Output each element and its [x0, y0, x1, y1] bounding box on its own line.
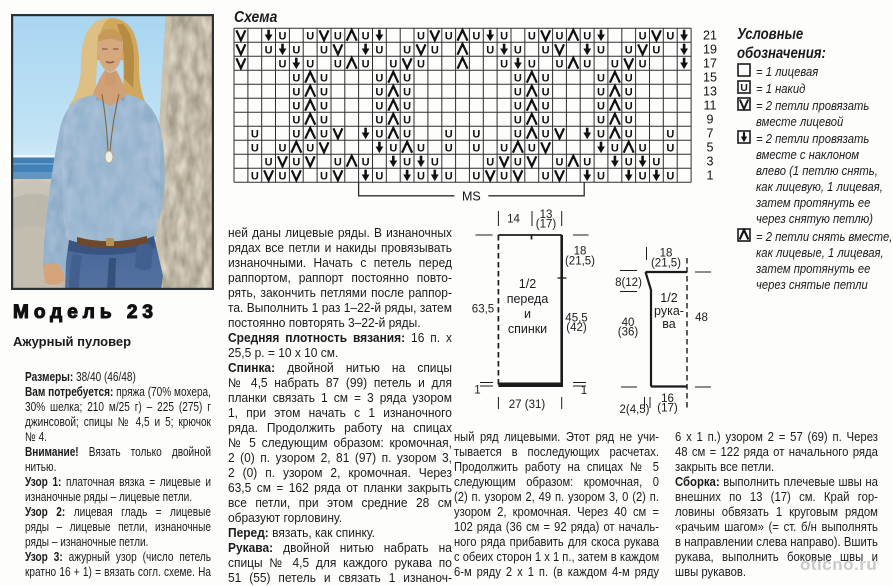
- svg-text:U: U: [403, 115, 411, 127]
- svg-text:1: 1: [474, 385, 480, 397]
- svg-text:U: U: [320, 87, 328, 99]
- svg-text:8(12): 8(12): [615, 277, 642, 289]
- svg-text:U: U: [639, 171, 647, 183]
- svg-text:1/2: 1/2: [660, 291, 677, 305]
- svg-text:2(4,5): 2(4,5): [619, 404, 649, 416]
- svg-text:U: U: [251, 171, 259, 183]
- svg-text:1: 1: [581, 385, 587, 397]
- svg-text:U: U: [306, 143, 314, 155]
- svg-text:U: U: [306, 59, 314, 71]
- svg-text:U: U: [666, 171, 674, 183]
- svg-text:U: U: [292, 87, 300, 99]
- svg-text:U: U: [666, 143, 674, 155]
- svg-text:U: U: [417, 31, 425, 43]
- svg-text:(17): (17): [657, 403, 678, 415]
- svg-text:U: U: [362, 59, 370, 71]
- svg-text:3: 3: [707, 155, 714, 169]
- svg-text:U: U: [362, 157, 370, 169]
- svg-text:U: U: [514, 45, 522, 57]
- svg-text:и: и: [524, 307, 531, 321]
- svg-text:U: U: [625, 101, 633, 113]
- svg-text:рука-: рука-: [654, 304, 684, 318]
- svg-text:27 (31): 27 (31): [509, 399, 546, 411]
- svg-text:U: U: [265, 45, 273, 57]
- svg-text:U: U: [500, 31, 508, 43]
- svg-text:(36): (36): [618, 327, 639, 339]
- svg-text:U: U: [320, 115, 328, 127]
- svg-text:U: U: [639, 143, 647, 155]
- svg-text:U: U: [403, 45, 411, 57]
- svg-text:U: U: [320, 171, 328, 183]
- svg-text:U: U: [500, 143, 508, 155]
- svg-text:U: U: [417, 171, 425, 183]
- svg-text:U: U: [528, 59, 536, 71]
- svg-text:48: 48: [695, 312, 708, 324]
- svg-text:ва: ва: [662, 317, 676, 331]
- svg-text:U: U: [403, 73, 411, 85]
- svg-text:U: U: [375, 45, 383, 57]
- svg-text:U: U: [375, 101, 383, 113]
- svg-text:U: U: [251, 143, 259, 155]
- svg-text:63,5: 63,5: [472, 304, 494, 316]
- svg-text:U: U: [431, 157, 439, 169]
- svg-text:U: U: [389, 143, 397, 155]
- svg-text:21: 21: [703, 29, 717, 43]
- svg-text:1/2: 1/2: [519, 277, 536, 291]
- svg-text:U: U: [625, 73, 633, 85]
- svg-text:U: U: [542, 101, 550, 113]
- svg-text:U: U: [597, 171, 605, 183]
- svg-text:U: U: [292, 129, 300, 141]
- svg-text:U: U: [542, 45, 550, 57]
- svg-text:U: U: [472, 31, 480, 43]
- svg-text:5: 5: [707, 141, 714, 155]
- svg-text:U: U: [306, 31, 314, 43]
- svg-text:U: U: [556, 31, 564, 43]
- svg-text:U: U: [597, 73, 605, 85]
- svg-text:U: U: [652, 157, 660, 169]
- svg-text:(42): (42): [566, 322, 587, 334]
- svg-text:U: U: [666, 129, 674, 141]
- svg-text:U: U: [472, 129, 480, 141]
- svg-text:U: U: [334, 59, 342, 71]
- svg-text:15: 15: [703, 71, 717, 85]
- svg-text:U: U: [597, 87, 605, 99]
- svg-text:U: U: [375, 87, 383, 99]
- svg-text:U: U: [597, 129, 605, 141]
- svg-text:U: U: [403, 101, 411, 113]
- svg-text:U: U: [542, 171, 550, 183]
- svg-text:U: U: [542, 129, 550, 141]
- svg-text:U: U: [403, 87, 411, 99]
- svg-text:U: U: [362, 31, 370, 43]
- svg-text:U: U: [514, 101, 522, 113]
- svg-text:U: U: [445, 129, 453, 141]
- svg-text:U: U: [597, 115, 605, 127]
- svg-text:U: U: [251, 129, 259, 141]
- svg-text:переда: переда: [507, 292, 549, 306]
- svg-text:U: U: [597, 45, 605, 57]
- svg-text:U: U: [583, 59, 591, 71]
- svg-text:U: U: [320, 73, 328, 85]
- svg-text:17: 17: [703, 57, 717, 71]
- svg-text:U: U: [625, 45, 633, 57]
- svg-text:U: U: [472, 171, 480, 183]
- svg-text:U: U: [528, 143, 536, 155]
- svg-text:U: U: [611, 59, 619, 71]
- svg-text:U: U: [445, 171, 453, 183]
- svg-text:19: 19: [703, 43, 717, 57]
- svg-text:U: U: [334, 31, 342, 43]
- svg-text:U: U: [445, 143, 453, 155]
- svg-text:U: U: [486, 157, 494, 169]
- svg-text:9: 9: [707, 113, 714, 127]
- svg-text:спинки: спинки: [508, 322, 547, 336]
- svg-text:U: U: [320, 129, 328, 141]
- svg-text:U: U: [472, 143, 480, 155]
- svg-text:U: U: [625, 87, 633, 99]
- svg-text:U: U: [500, 59, 508, 71]
- svg-text:U: U: [597, 101, 605, 113]
- svg-text:U: U: [417, 143, 425, 155]
- svg-text:U: U: [583, 31, 591, 43]
- svg-text:U: U: [500, 171, 508, 183]
- svg-text:U: U: [389, 59, 397, 71]
- svg-text:14: 14: [507, 214, 520, 226]
- svg-text:U: U: [334, 157, 342, 169]
- svg-text:U: U: [740, 82, 748, 94]
- svg-text:U: U: [542, 73, 550, 85]
- svg-text:U: U: [279, 143, 287, 155]
- svg-text:U: U: [611, 143, 619, 155]
- svg-text:U: U: [292, 101, 300, 113]
- svg-text:U: U: [639, 59, 647, 71]
- svg-text:U: U: [542, 87, 550, 99]
- svg-text:U: U: [320, 101, 328, 113]
- svg-text:U: U: [375, 171, 383, 183]
- svg-text:U: U: [625, 115, 633, 127]
- svg-text:(21,5): (21,5): [565, 256, 595, 268]
- svg-text:U: U: [542, 115, 550, 127]
- svg-text:U: U: [639, 31, 647, 43]
- svg-text:U: U: [666, 31, 674, 43]
- svg-text:U: U: [652, 45, 660, 57]
- svg-text:11: 11: [704, 99, 717, 113]
- svg-text:U: U: [403, 157, 411, 169]
- svg-text:U: U: [292, 115, 300, 127]
- svg-text:U: U: [279, 31, 287, 43]
- svg-text:1: 1: [707, 169, 714, 183]
- svg-text:U: U: [417, 59, 425, 71]
- svg-text:U: U: [556, 157, 564, 169]
- svg-text:U: U: [292, 73, 300, 85]
- svg-text:U: U: [583, 157, 591, 169]
- svg-text:U: U: [375, 129, 383, 141]
- svg-text:U: U: [625, 129, 633, 141]
- svg-text:U: U: [514, 87, 522, 99]
- svg-text:U: U: [556, 59, 564, 71]
- svg-text:(21,5): (21,5): [651, 258, 681, 270]
- svg-text:U: U: [292, 157, 300, 169]
- svg-text:U: U: [486, 45, 494, 57]
- svg-text:U: U: [279, 59, 287, 71]
- svg-text:U: U: [625, 157, 633, 169]
- svg-text:13: 13: [703, 85, 717, 99]
- svg-text:U: U: [528, 31, 536, 43]
- svg-text:U: U: [514, 157, 522, 169]
- svg-text:U: U: [375, 73, 383, 85]
- svg-text:(17): (17): [536, 219, 557, 231]
- svg-text:U: U: [514, 129, 522, 141]
- svg-text:U: U: [265, 157, 273, 169]
- svg-text:U: U: [514, 73, 522, 85]
- svg-text:U: U: [292, 45, 300, 57]
- svg-text:U: U: [445, 31, 453, 43]
- svg-text:U: U: [375, 115, 383, 127]
- svg-text:U: U: [431, 45, 439, 57]
- svg-text:U: U: [320, 45, 328, 57]
- svg-text:U: U: [514, 115, 522, 127]
- svg-text:7: 7: [707, 127, 714, 141]
- svg-text:U: U: [279, 171, 287, 183]
- svg-text:U: U: [403, 129, 411, 141]
